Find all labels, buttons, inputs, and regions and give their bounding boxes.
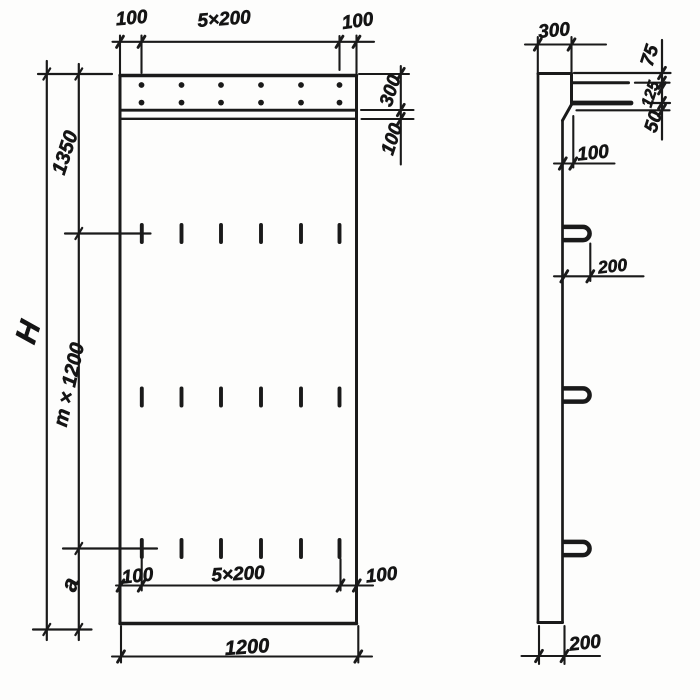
svg-text:100: 100	[378, 121, 408, 158]
svg-text:1350: 1350	[48, 128, 83, 177]
svg-text:50: 50	[641, 108, 668, 135]
svg-text:100: 100	[121, 564, 155, 588]
svg-text:m × 1200: m × 1200	[50, 341, 89, 429]
svg-text:100: 100	[340, 9, 375, 34]
svg-text:200: 200	[596, 255, 628, 278]
svg-text:5×200: 5×200	[197, 7, 252, 32]
svg-text:5×200: 5×200	[211, 563, 266, 587]
svg-text:100: 100	[365, 563, 399, 587]
svg-text:300: 300	[537, 19, 571, 43]
svg-text:75: 75	[637, 42, 664, 69]
svg-text:100: 100	[115, 7, 149, 31]
svg-text:200: 200	[567, 631, 602, 655]
svg-text:100: 100	[576, 141, 610, 165]
svg-text:H: H	[9, 316, 47, 348]
svg-text:1200: 1200	[224, 635, 270, 660]
